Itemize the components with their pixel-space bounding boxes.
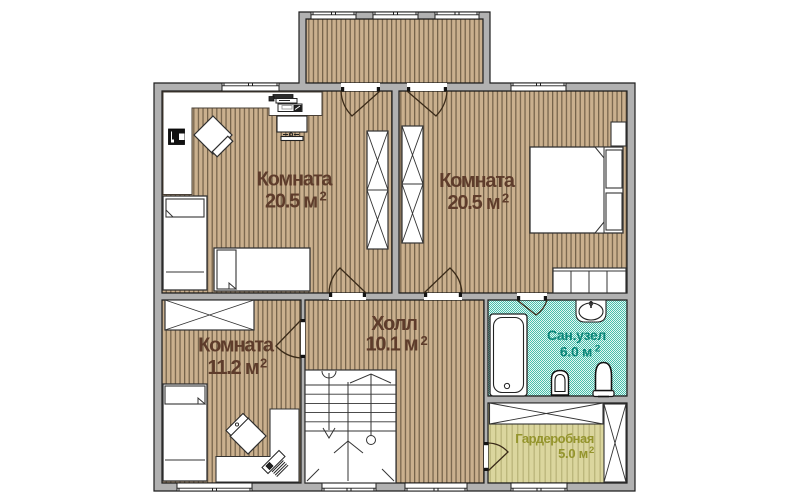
svg-text:2: 2 xyxy=(502,191,509,206)
svg-text:2: 2 xyxy=(260,356,267,371)
svg-text:6.0 м: 6.0 м xyxy=(560,344,592,360)
svg-text:10.1 м: 10.1 м xyxy=(365,334,417,356)
svg-text:Сан.узел: Сан.узел xyxy=(547,327,606,343)
svg-text:20.5 м: 20.5 м xyxy=(265,191,317,213)
svg-text:Комната: Комната xyxy=(198,335,275,357)
svg-text:11.2 м: 11.2 м xyxy=(208,357,259,379)
svg-text:2: 2 xyxy=(595,344,600,355)
svg-text:Комната: Комната xyxy=(257,169,334,191)
svg-text:2: 2 xyxy=(320,189,327,204)
svg-text:2: 2 xyxy=(421,333,428,348)
svg-text:Гардеробная: Гардеробная xyxy=(515,431,594,446)
svg-text:Комната: Комната xyxy=(439,170,516,192)
svg-text:5.0 м: 5.0 м xyxy=(558,446,588,461)
svg-text:Холл: Холл xyxy=(371,313,417,335)
svg-text:20.5 м: 20.5 м xyxy=(447,192,499,214)
svg-text:2: 2 xyxy=(589,445,594,456)
